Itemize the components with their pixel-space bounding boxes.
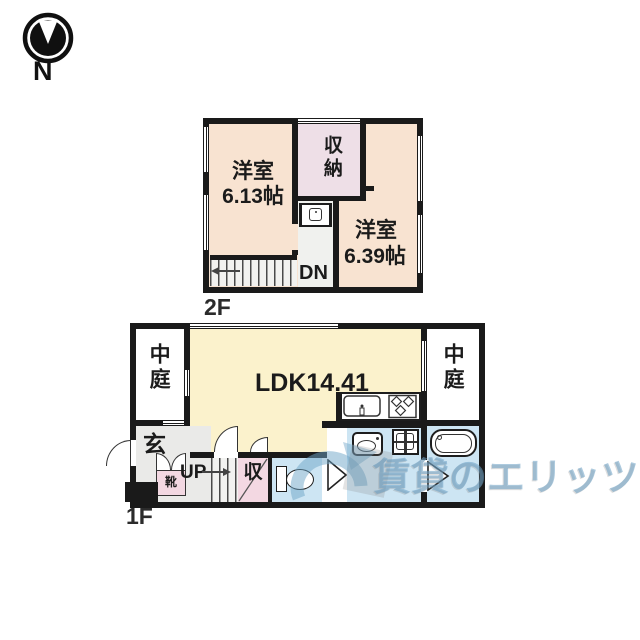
folding-door-icon [327,459,347,491]
floor2-tag: 2F [204,294,231,321]
north-label: N [33,56,53,87]
staircase-1f [211,458,238,502]
window-marker [421,341,427,391]
courtyard-right-label: 中庭 [440,343,464,393]
wall-segment [298,196,366,201]
floor2-plan: 収納 DN 洋室 6.13帖 洋室 6.39帖 [203,118,423,293]
window-marker [298,118,360,124]
kitchen-sink-icon [342,394,419,419]
door-opening [292,224,298,250]
stair-arrowhead [211,267,219,275]
washing-machine-pan-icon [392,429,419,455]
room-left-size: 6.13帖 [203,185,303,209]
stair-arrowhead [223,468,231,476]
bathtub-icon [430,429,477,457]
washbasin-icon [352,432,383,456]
stair-direction-arrow [202,471,224,473]
kitchen-counter [340,392,421,421]
porch-wall [125,482,158,502]
toilet-icon [286,469,314,490]
window-marker [203,195,209,250]
hand-wash-basin-icon [299,203,332,227]
folding-door-icon [427,461,451,491]
stairs-down-label: DN [299,262,328,285]
floor1-tag: 1F [126,503,153,530]
storage-label: 収 [240,462,266,484]
shoe-cabinet-label: 靴 [165,475,177,489]
wall-segment [366,186,374,191]
closet-label: 収納 [320,135,342,181]
stair-direction-arrow [216,270,240,272]
floor1-plan: LDK14.41 中庭 玄 靴 UP 収 [130,323,485,508]
entrance-label: 玄 [143,431,166,457]
room-left-name: 洋室 [209,160,297,184]
room-right-name: 洋室 [333,219,419,243]
window-marker [184,370,190,396]
entrance-door-arc [106,440,131,466]
window-marker [417,136,423,201]
room-right-size: 6.39帖 [327,245,423,269]
wall-segment [333,201,339,287]
window-marker [203,127,209,172]
window-marker [417,215,423,273]
courtyard-left-label: 中庭 [146,343,170,393]
window-marker [190,323,338,329]
stove-icon [389,396,416,418]
floorplan-page: N 収納 DN 洋室 6.13帖 洋室 6.39帖 [0,0,640,640]
